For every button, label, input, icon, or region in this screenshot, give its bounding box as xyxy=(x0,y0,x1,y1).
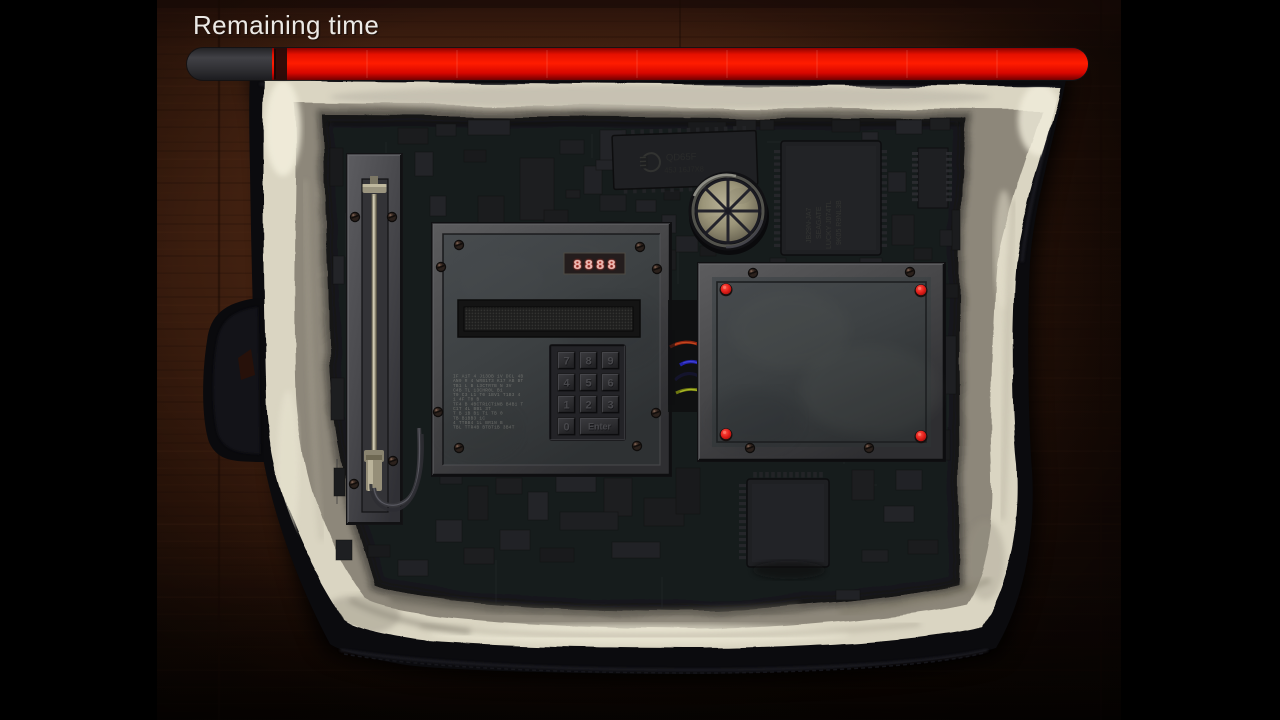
svg-text:4: 4 xyxy=(563,377,570,389)
svg-text:LUCKY J074TL: LUCKY J074TL xyxy=(826,200,833,249)
svg-text:1: 1 xyxy=(563,399,569,411)
svg-text:TBL TTR4B BTBT1B 3B4T: TBL TTR4B BTBT1B 3B4T xyxy=(453,426,515,431)
svg-text:9K05 R9NL3B: 9K05 R9NL3B xyxy=(836,200,843,245)
svg-text:45J 16J7X8: 45J 16J7X8 xyxy=(664,164,704,174)
svg-text:8: 8 xyxy=(585,355,591,367)
svg-text:JB29N-JA7: JB29N-JA7 xyxy=(806,207,813,243)
svg-text:QD65F: QD65F xyxy=(666,152,697,164)
svg-text:SEAGATE: SEAGATE xyxy=(816,206,823,239)
svg-text:8888: 8888 xyxy=(573,258,619,274)
svg-text:Enter: Enter xyxy=(588,422,612,432)
svg-text:9: 9 xyxy=(607,355,613,367)
svg-text:5: 5 xyxy=(585,377,591,389)
svg-text:2: 2 xyxy=(585,399,591,411)
svg-text:7: 7 xyxy=(563,355,569,367)
svg-text:6: 6 xyxy=(607,377,613,389)
svg-text:Remaining time: Remaining time xyxy=(193,10,379,40)
svg-text:3: 3 xyxy=(607,399,613,411)
svg-text:0: 0 xyxy=(563,421,569,433)
